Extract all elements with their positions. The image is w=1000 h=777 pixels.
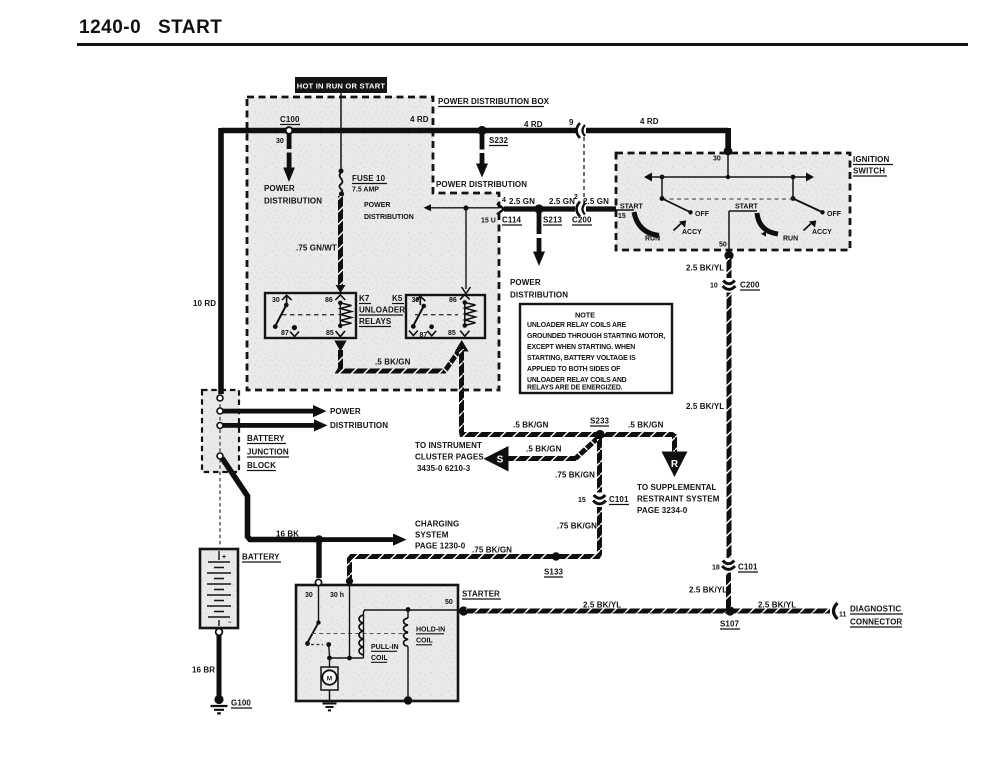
svg-text:RUN: RUN xyxy=(645,236,660,243)
svg-text:87: 87 xyxy=(420,332,428,339)
svg-text:15: 15 xyxy=(618,213,626,220)
svg-text:JUNCTION: JUNCTION xyxy=(247,448,289,457)
svg-text:ACCY: ACCY xyxy=(812,229,832,236)
svg-text:10 RD: 10 RD xyxy=(193,299,216,308)
svg-text:RESTRAINT SYSTEM: RESTRAINT SYSTEM xyxy=(637,495,720,504)
svg-text:IGNITION: IGNITION xyxy=(853,155,889,164)
svg-text:RUN: RUN xyxy=(783,236,798,243)
svg-text:TO INSTRUMENT: TO INSTRUMENT xyxy=(415,441,482,450)
svg-text:STARTER: STARTER xyxy=(462,590,500,599)
svg-text:−: − xyxy=(228,620,232,626)
svg-text:K5: K5 xyxy=(392,294,403,303)
svg-text:2.5 BK/YL: 2.5 BK/YL xyxy=(583,601,621,610)
svg-text:85: 85 xyxy=(448,330,456,337)
svg-text:S133: S133 xyxy=(544,568,564,577)
svg-text:30: 30 xyxy=(305,592,313,599)
svg-text:ACCY: ACCY xyxy=(682,229,702,236)
svg-text:86: 86 xyxy=(449,297,457,304)
svg-text:DISTRIBUTION: DISTRIBUTION xyxy=(330,421,388,430)
svg-text:16 BK: 16 BK xyxy=(276,530,299,539)
svg-text:TO SUPPLEMENTAL: TO SUPPLEMENTAL xyxy=(637,483,716,492)
svg-text:.75 GN/WT: .75 GN/WT xyxy=(296,244,337,253)
svg-text:2.5 BK/YL: 2.5 BK/YL xyxy=(686,264,724,273)
svg-text:.5 BK/GN: .5 BK/GN xyxy=(513,421,549,430)
svg-text:30 h: 30 h xyxy=(330,592,344,599)
svg-text:10: 10 xyxy=(710,283,718,290)
svg-text:S233: S233 xyxy=(590,417,610,426)
svg-text:30: 30 xyxy=(412,297,420,304)
svg-text:POWER: POWER xyxy=(364,202,390,209)
svg-text:2.5 GN: 2.5 GN xyxy=(509,197,535,206)
svg-text:OFF: OFF xyxy=(827,211,842,218)
svg-text:85: 85 xyxy=(326,330,334,337)
svg-text:4: 4 xyxy=(502,197,506,204)
svg-text:HOLD-IN: HOLD-IN xyxy=(416,627,445,634)
svg-text:STARTING, BATTERY VOLTAGE IS: STARTING, BATTERY VOLTAGE IS xyxy=(527,355,636,362)
svg-text:.75 BK/GN: .75 BK/GN xyxy=(472,546,512,555)
svg-text:.75 BK/GN: .75 BK/GN xyxy=(555,471,595,480)
svg-text:86: 86 xyxy=(325,297,333,304)
svg-text:COIL: COIL xyxy=(416,638,433,645)
svg-text:DIAGNOSTIC: DIAGNOSTIC xyxy=(850,605,901,614)
svg-text:RELAYS ARE DE ENERGIZED.: RELAYS ARE DE ENERGIZED. xyxy=(527,385,623,392)
svg-text:PAGE 3234-0: PAGE 3234-0 xyxy=(637,506,688,515)
svg-text:UNLOADER: UNLOADER xyxy=(359,306,405,315)
svg-text:POWER DISTRIBUTION: POWER DISTRIBUTION xyxy=(436,180,527,189)
svg-text:4 RD: 4 RD xyxy=(410,115,429,124)
svg-text:CHARGING: CHARGING xyxy=(415,520,459,529)
svg-text:18: 18 xyxy=(712,565,720,572)
svg-text:PULL-IN: PULL-IN xyxy=(371,644,399,651)
svg-text:2.5 BK/YL: 2.5 BK/YL xyxy=(686,402,724,411)
svg-text:COIL: COIL xyxy=(371,655,388,662)
svg-text:+: + xyxy=(222,554,226,561)
svg-text:APPLIED TO BOTH SIDES OF: APPLIED TO BOTH SIDES OF xyxy=(527,366,620,373)
svg-text:S213: S213 xyxy=(543,216,563,225)
svg-text:POWER: POWER xyxy=(264,184,295,193)
svg-text:C101: C101 xyxy=(609,495,629,504)
svg-text:POWER: POWER xyxy=(510,278,541,287)
svg-text:CLUSTER PAGES: CLUSTER PAGES xyxy=(415,453,484,462)
svg-text:2: 2 xyxy=(574,194,578,201)
svg-text:SWITCH: SWITCH xyxy=(853,167,885,176)
svg-text:START: START xyxy=(735,204,759,211)
svg-text:C200: C200 xyxy=(572,216,592,225)
svg-text:.5 BK/GN: .5 BK/GN xyxy=(375,358,411,367)
svg-text:11: 11 xyxy=(839,612,847,619)
svg-text:GROUNDED THROUGH STARTING MOTO: GROUNDED THROUGH STARTING MOTOR, xyxy=(527,333,665,340)
svg-text:30: 30 xyxy=(276,138,284,145)
svg-text:SYSTEM: SYSTEM xyxy=(415,531,449,540)
svg-text:HOT IN RUN OR START: HOT IN RUN OR START xyxy=(297,82,386,91)
svg-text:K7: K7 xyxy=(359,294,370,303)
svg-text:START: START xyxy=(620,204,644,211)
svg-text:2.5 GN: 2.5 GN xyxy=(549,197,575,206)
svg-text:NOTE: NOTE xyxy=(575,311,595,320)
svg-text:16 BR: 16 BR xyxy=(192,666,215,675)
svg-text:BATTERY: BATTERY xyxy=(247,434,285,443)
svg-text:2.5 GN: 2.5 GN xyxy=(583,197,609,206)
svg-text:1240-0: 1240-0 xyxy=(79,17,141,38)
svg-text:87: 87 xyxy=(281,330,289,337)
svg-text:RELAYS: RELAYS xyxy=(359,317,392,326)
svg-text:30: 30 xyxy=(713,156,721,163)
svg-text:PAGE 1230-0: PAGE 1230-0 xyxy=(415,542,466,551)
svg-text:C101: C101 xyxy=(738,563,758,572)
svg-text:S232: S232 xyxy=(489,136,509,145)
svg-text:S: S xyxy=(497,455,504,466)
svg-text:G100: G100 xyxy=(231,699,251,708)
svg-text:C200: C200 xyxy=(740,281,760,290)
svg-text:EXCEPT WHEN STARTING. WHEN: EXCEPT WHEN STARTING. WHEN xyxy=(527,344,635,351)
svg-text:.5 BK/GN: .5 BK/GN xyxy=(628,421,664,430)
svg-text:9: 9 xyxy=(569,118,574,127)
svg-text:C100: C100 xyxy=(280,115,300,124)
svg-text:M: M xyxy=(327,676,332,683)
svg-text:3435-0 6210-3: 3435-0 6210-3 xyxy=(417,464,471,473)
svg-text:CONNECTOR: CONNECTOR xyxy=(850,618,902,627)
svg-text:START: START xyxy=(158,17,222,38)
svg-text:50: 50 xyxy=(445,599,453,606)
svg-text:OFF: OFF xyxy=(695,211,710,218)
svg-text:DISTRIBUTION: DISTRIBUTION xyxy=(510,291,568,300)
svg-text:2.5 BK/YL: 2.5 BK/YL xyxy=(689,586,727,595)
svg-text:C114: C114 xyxy=(502,216,522,225)
svg-text:2.5 BK/YL: 2.5 BK/YL xyxy=(758,601,796,610)
svg-text:DISTRIBUTION: DISTRIBUTION xyxy=(364,214,414,221)
svg-text:.5 BK/GN: .5 BK/GN xyxy=(526,445,562,454)
svg-text:.75 BK/GN: .75 BK/GN xyxy=(557,522,597,531)
svg-text:UNLOADER RELAY COILS AND: UNLOADER RELAY COILS AND xyxy=(527,377,627,384)
svg-text:DISTRIBUTION: DISTRIBUTION xyxy=(264,197,322,206)
svg-text:R: R xyxy=(671,459,679,470)
svg-text:S107: S107 xyxy=(720,620,740,629)
svg-text:7.5 AMP: 7.5 AMP xyxy=(352,187,379,194)
svg-text:BLOCK: BLOCK xyxy=(247,461,276,470)
svg-text:30: 30 xyxy=(272,297,280,304)
svg-text:BATTERY: BATTERY xyxy=(242,553,280,562)
svg-text:POWER DISTRIBUTION BOX: POWER DISTRIBUTION BOX xyxy=(438,97,550,106)
svg-text:POWER: POWER xyxy=(330,407,361,416)
svg-text:50: 50 xyxy=(719,242,727,249)
svg-text:UNLOADER RELAY COILS ARE: UNLOADER RELAY COILS ARE xyxy=(527,322,627,329)
svg-text:4 RD: 4 RD xyxy=(524,120,543,129)
svg-text:FUSE 10: FUSE 10 xyxy=(352,174,386,183)
svg-text:15: 15 xyxy=(578,497,586,504)
svg-text:15 U: 15 U xyxy=(481,218,496,225)
svg-text:4 RD: 4 RD xyxy=(640,117,659,126)
